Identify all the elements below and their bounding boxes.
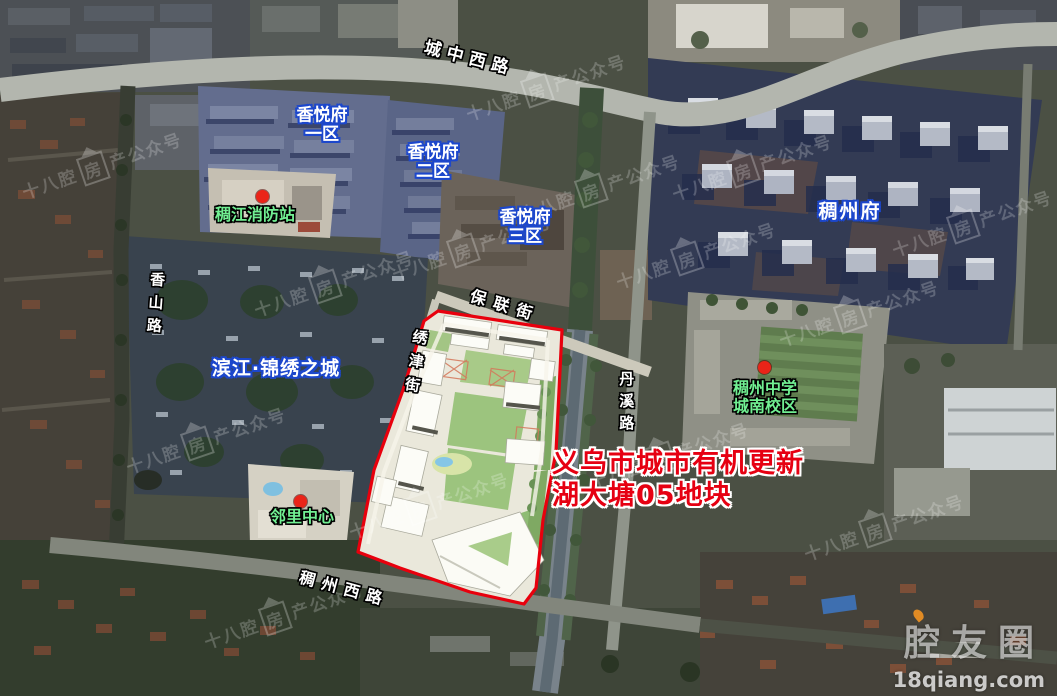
estate-label-chouzhoufu: 稠州府 xyxy=(818,202,881,223)
annotation-site-title: 义乌市城市有机更新湖大塘05地块 xyxy=(552,448,804,512)
poi-label-neighborhood-center: 邻里中心 xyxy=(270,508,334,526)
poi-label-fire-station: 稠江消防站 xyxy=(215,206,295,224)
road-label-xiangshan-road: 香山路 xyxy=(144,271,165,341)
estate-label-xiangyuefu-district2: 香悦府二区 xyxy=(408,143,459,180)
logo-site-url: 18qiang.com xyxy=(893,668,1045,692)
estate-label-xiangyuefu-district3: 香悦府三区 xyxy=(500,208,551,245)
estate-label-binjiang-jinxiu: 滨江·锦绣之城 xyxy=(212,359,340,380)
logo-name: 腔友圈 xyxy=(893,614,1045,666)
poi-label-school: 稠州中学城南校区 xyxy=(733,379,797,414)
poi-dot-school xyxy=(758,361,771,374)
poi-dot-fire-station xyxy=(256,190,269,203)
poi-dot-neighborhood-center xyxy=(294,495,307,508)
estate-label-xiangyuefu-district1: 香悦府一区 xyxy=(297,106,348,143)
map-screenshot: 十八腔房产公众号 十八腔房产公众号 十八腔房产公众号 十八腔房产公众号 十八腔房… xyxy=(0,0,1057,696)
logo-qiangyouquan: 腔友圈 18qiang.com xyxy=(893,614,1045,692)
road-label-danxi-road: 丹溪路 xyxy=(618,371,635,437)
